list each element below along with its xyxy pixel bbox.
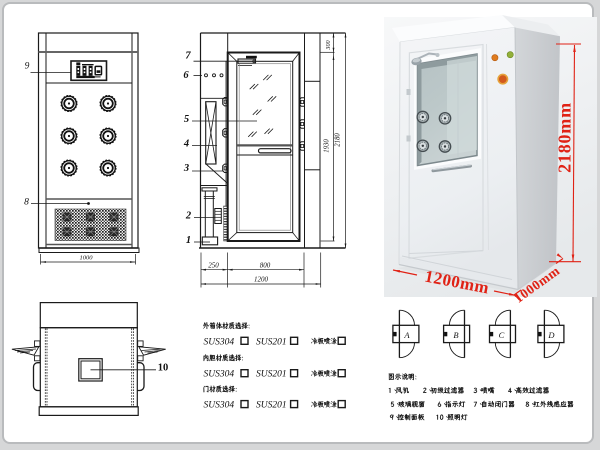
svg-text:SUS201: SUS201 — [256, 370, 287, 380]
svg-text:7: 7 — [185, 51, 191, 62]
svg-text:8: 8 — [24, 198, 29, 208]
svg-text:1: 1 — [186, 235, 191, 246]
svg-text:SUS201: SUS201 — [256, 401, 287, 411]
svg-text:9: 9 — [25, 62, 30, 72]
svg-text:6: 6 — [183, 70, 189, 81]
svg-text:2180mm: 2180mm — [555, 102, 575, 173]
svg-text:4: 4 — [183, 139, 189, 150]
svg-text:800: 800 — [260, 261, 271, 269]
svg-text:300: 300 — [325, 39, 332, 50]
svg-text:250: 250 — [208, 261, 219, 269]
svg-text:A: A — [403, 330, 410, 340]
svg-text:1000: 1000 — [80, 255, 94, 262]
svg-text:1200: 1200 — [254, 276, 269, 284]
svg-text:2180: 2180 — [335, 133, 342, 147]
svg-text:SUS201: SUS201 — [256, 337, 287, 347]
svg-text:SUS304: SUS304 — [204, 401, 235, 411]
svg-text:3: 3 — [183, 163, 189, 174]
svg-text:5: 5 — [184, 114, 189, 125]
svg-text:B: B — [453, 330, 458, 340]
svg-text:C: C — [499, 330, 505, 340]
svg-text:10: 10 — [158, 362, 169, 373]
svg-text:D: D — [547, 330, 555, 340]
svg-text:SUS304: SUS304 — [204, 370, 235, 380]
svg-text:2: 2 — [185, 211, 192, 222]
svg-text:1930: 1930 — [324, 139, 331, 153]
svg-text:SUS304: SUS304 — [204, 337, 235, 347]
